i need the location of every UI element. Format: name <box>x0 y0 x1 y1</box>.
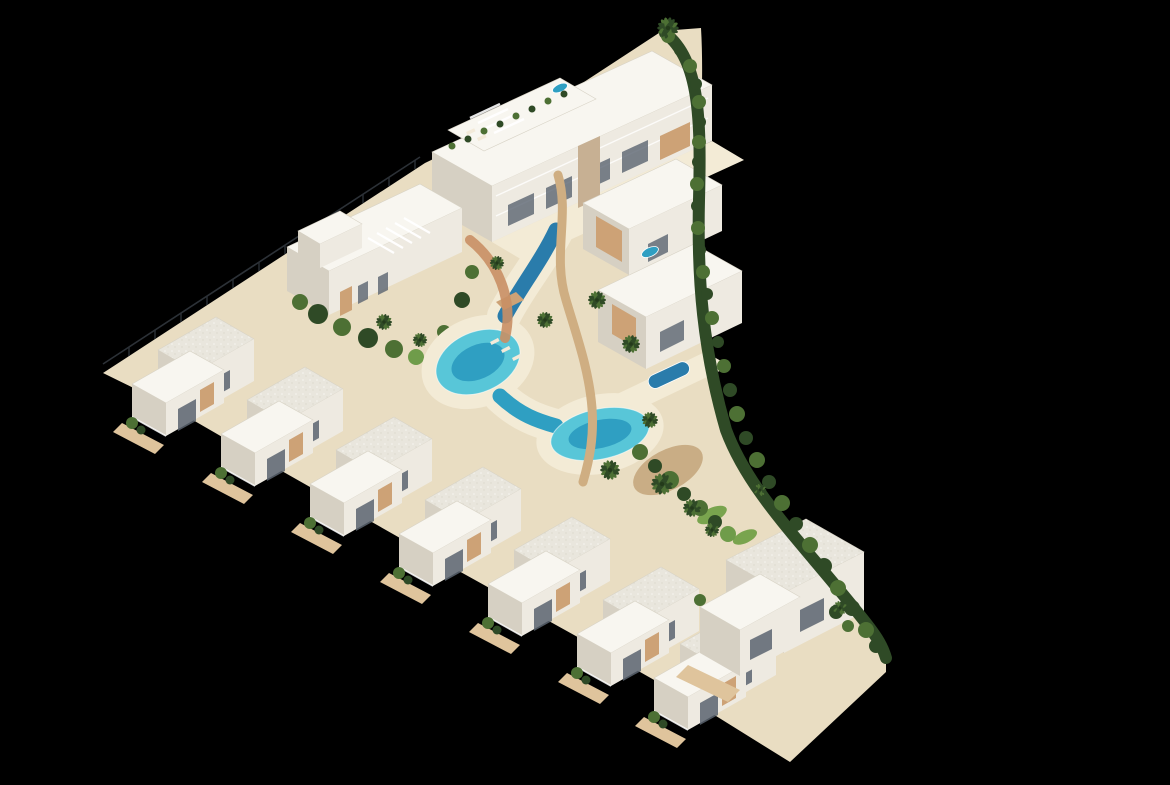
aerial-render <box>0 0 1170 785</box>
render-canvas: Aerial 3D render of a triangular coastal… <box>0 0 1170 785</box>
